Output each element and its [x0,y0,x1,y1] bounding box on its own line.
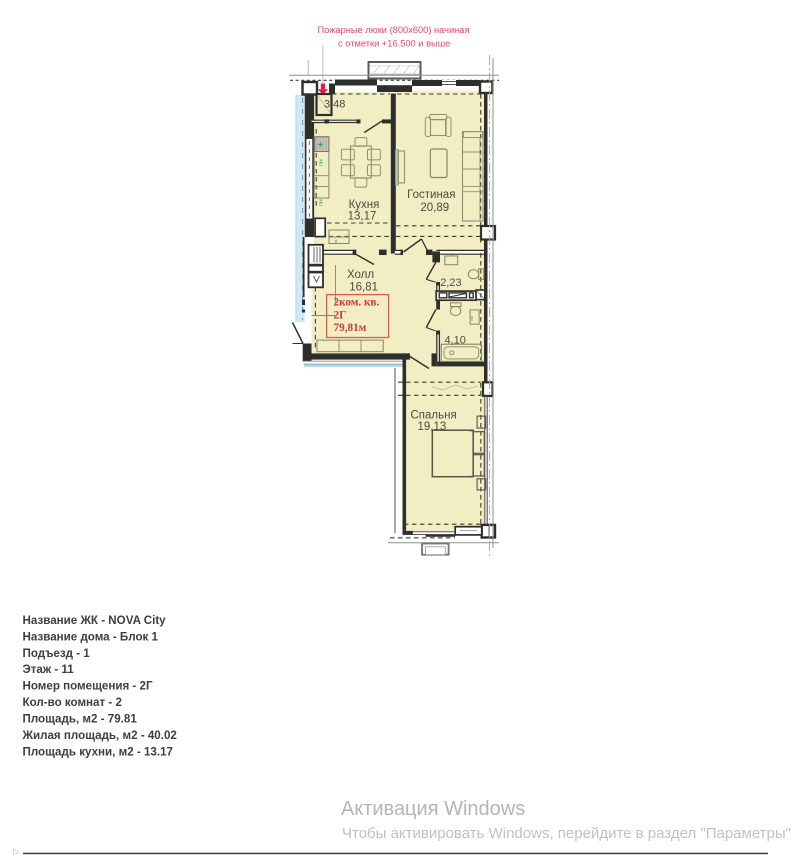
svg-text:20,89: 20,89 [420,202,449,214]
svg-text:пм: пм [319,199,325,206]
svg-text:Подъезд - 1: Подъезд - 1 [23,647,91,660]
svg-text:Пожарные люки (800х600) начина: Пожарные люки (800х600) начиная [317,25,469,35]
svg-text:Чтобы активировать Windows, пе: Чтобы активировать Windows, перейдите в … [342,825,791,842]
svg-text:Этаж - 11: Этаж - 11 [23,663,75,676]
svg-text:16,81: 16,81 [349,281,378,293]
svg-text:Площадь кухни, м2 - 13.17: Площадь кухни, м2 - 13.17 [23,746,173,759]
svg-text:Название дома - Блок 1: Название дома - Блок 1 [23,630,159,643]
svg-text:19,13: 19,13 [418,421,447,433]
svg-text:13,17: 13,17 [348,211,377,223]
svg-text:Название ЖК - NOVA City: Название ЖК - NOVA City [23,614,167,627]
svg-text:4,10: 4,10 [445,335,466,347]
svg-text:Кол-во комнат - 2: Кол-во комнат - 2 [23,696,122,709]
svg-text:пм: пм [319,159,325,166]
svg-text:Холл: Холл [347,269,374,281]
svg-text:2Г: 2Г [334,309,347,321]
svg-text:см: см [469,316,474,321]
svg-text:Спальня: Спальня [410,409,456,421]
svg-text:2ком. кв.: 2ком. кв. [334,296,380,308]
svg-text:Гостиная: Гостиная [407,189,455,201]
svg-text:Жилая площадь, м2 - 40.02: Жилая площадь, м2 - 40.02 [22,729,177,742]
svg-text:Площадь, м2 - 79.81: Площадь, м2 - 79.81 [23,713,138,726]
svg-text:x: x [335,239,338,245]
svg-text:Номер помещения - 2Г: Номер помещения - 2Г [23,680,153,693]
svg-text:3,48: 3,48 [324,99,345,111]
svg-text:с отметки +16.500 и выше: с отметки +16.500 и выше [338,39,450,49]
svg-text:Активация Windows: Активация Windows [341,798,525,820]
svg-text:2,23: 2,23 [440,277,461,289]
svg-text:Кухня: Кухня [349,199,380,211]
svg-text:79,81м: 79,81м [334,322,367,334]
